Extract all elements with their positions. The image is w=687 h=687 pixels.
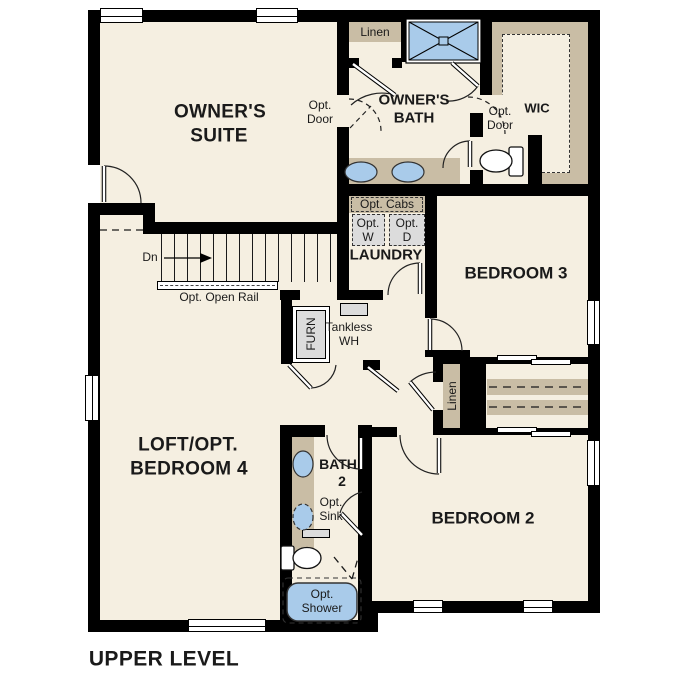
wall-laundry-right xyxy=(425,196,437,318)
wall-wc-left-a xyxy=(470,113,483,137)
wall-top xyxy=(88,10,600,22)
room-label-owners-suite-2: SUITE xyxy=(190,127,247,146)
room-label-owners-bath-2: BATH xyxy=(394,111,435,126)
room-label-loft-1: LOFT/OPT. xyxy=(138,436,238,455)
room-label-loft-2: BEDROOM 4 xyxy=(130,460,248,479)
owners-bath-vanity xyxy=(342,158,460,185)
label-opt-sink-1: Opt. xyxy=(320,496,343,508)
room-label-bath2-1: BATH xyxy=(319,457,357,471)
wall-bath2-divider xyxy=(358,425,372,620)
closet-shelf-bedroom2 xyxy=(487,400,588,415)
window xyxy=(100,8,143,23)
floor-plan: OWNER'S SUITE OWNER'S BATH WIC LAUNDRY B… xyxy=(0,0,687,687)
bypass-door-panel xyxy=(531,431,571,437)
window xyxy=(413,600,443,613)
wall-laundry-bottom xyxy=(337,290,383,300)
label-linen-top: Linen xyxy=(360,26,389,38)
wall-linen-stub-left xyxy=(349,58,359,68)
room-label-bath2-2: 2 xyxy=(338,474,346,488)
room-label-bedroom2: BEDROOM 2 xyxy=(432,510,535,527)
room-label-laundry: LAUNDRY xyxy=(350,248,423,263)
window xyxy=(587,440,600,486)
wall-left-upper xyxy=(88,10,100,165)
wall-closet-left-a xyxy=(433,357,443,382)
wall-nook-stub xyxy=(363,360,380,370)
label-opt-sink-2: Sink xyxy=(319,510,342,522)
wall-mid-row xyxy=(337,184,600,196)
wall-stair-top xyxy=(143,222,349,234)
room-label-wic: WIC xyxy=(524,102,549,115)
label-opt-door-suite-1: Opt. xyxy=(309,99,332,111)
window xyxy=(85,375,99,421)
water-closet-floor xyxy=(483,135,528,184)
label-furnace: FURN xyxy=(305,317,317,350)
label-opt-shower-2: Shower xyxy=(302,602,343,614)
window xyxy=(256,8,298,23)
wall-bottom-bedroom2 xyxy=(366,601,600,613)
label-opt-open-rail: Opt. Open Rail xyxy=(179,291,258,303)
wall-closet-chunk xyxy=(460,357,486,435)
staircase-treads xyxy=(161,234,337,282)
wall-wic-left xyxy=(480,10,492,95)
label-opt-door-suite-2: Door xyxy=(307,113,333,125)
wall-stair-right xyxy=(337,196,349,300)
window xyxy=(587,300,600,345)
label-opt-door-wic-2: Door xyxy=(487,119,513,131)
wall-bath-divider-a xyxy=(337,22,349,95)
tankless-water-heater xyxy=(340,303,368,316)
label-stairs-down: Dn xyxy=(142,251,157,263)
bath2-niche xyxy=(302,529,330,538)
label-tankless-1: Tankless xyxy=(326,321,373,333)
wall-bath2-left xyxy=(280,425,292,620)
label-opt-dryer-1: Opt. xyxy=(396,217,419,229)
label-tankless-2: WH xyxy=(339,335,359,347)
room-label-owners-suite-1: OWNER'S xyxy=(174,103,266,122)
wall-owners-door-stub xyxy=(95,203,143,215)
label-opt-dryer-2: D xyxy=(403,231,412,243)
wall-nook-left xyxy=(281,296,292,364)
opt-open-rail xyxy=(157,281,278,290)
bypass-door-panel xyxy=(531,359,571,365)
closet-shelf-bedroom3 xyxy=(487,379,588,395)
label-opt-washer-1: Opt. xyxy=(357,217,380,229)
wall-bedroom3-jog xyxy=(425,350,470,357)
label-opt-cabs: Opt. Cabs xyxy=(360,198,414,210)
wall-closet-left-b xyxy=(433,410,443,435)
label-linen-hall: Linen xyxy=(446,381,458,410)
label-opt-shower-1: Opt. xyxy=(311,588,334,600)
page-title: UPPER LEVEL xyxy=(89,649,239,670)
wall-linen-stub-right xyxy=(392,58,402,68)
wall-linen-shower xyxy=(401,22,407,62)
wall-wc-right xyxy=(528,135,542,184)
room-label-owners-bath-1: OWNER'S xyxy=(378,93,449,108)
room-label-bedroom3: BEDROOM 3 xyxy=(465,265,568,282)
window xyxy=(523,600,553,613)
label-opt-washer-2: W xyxy=(362,231,373,243)
label-opt-door-wic-1: Opt. xyxy=(489,105,512,117)
window xyxy=(188,619,266,632)
